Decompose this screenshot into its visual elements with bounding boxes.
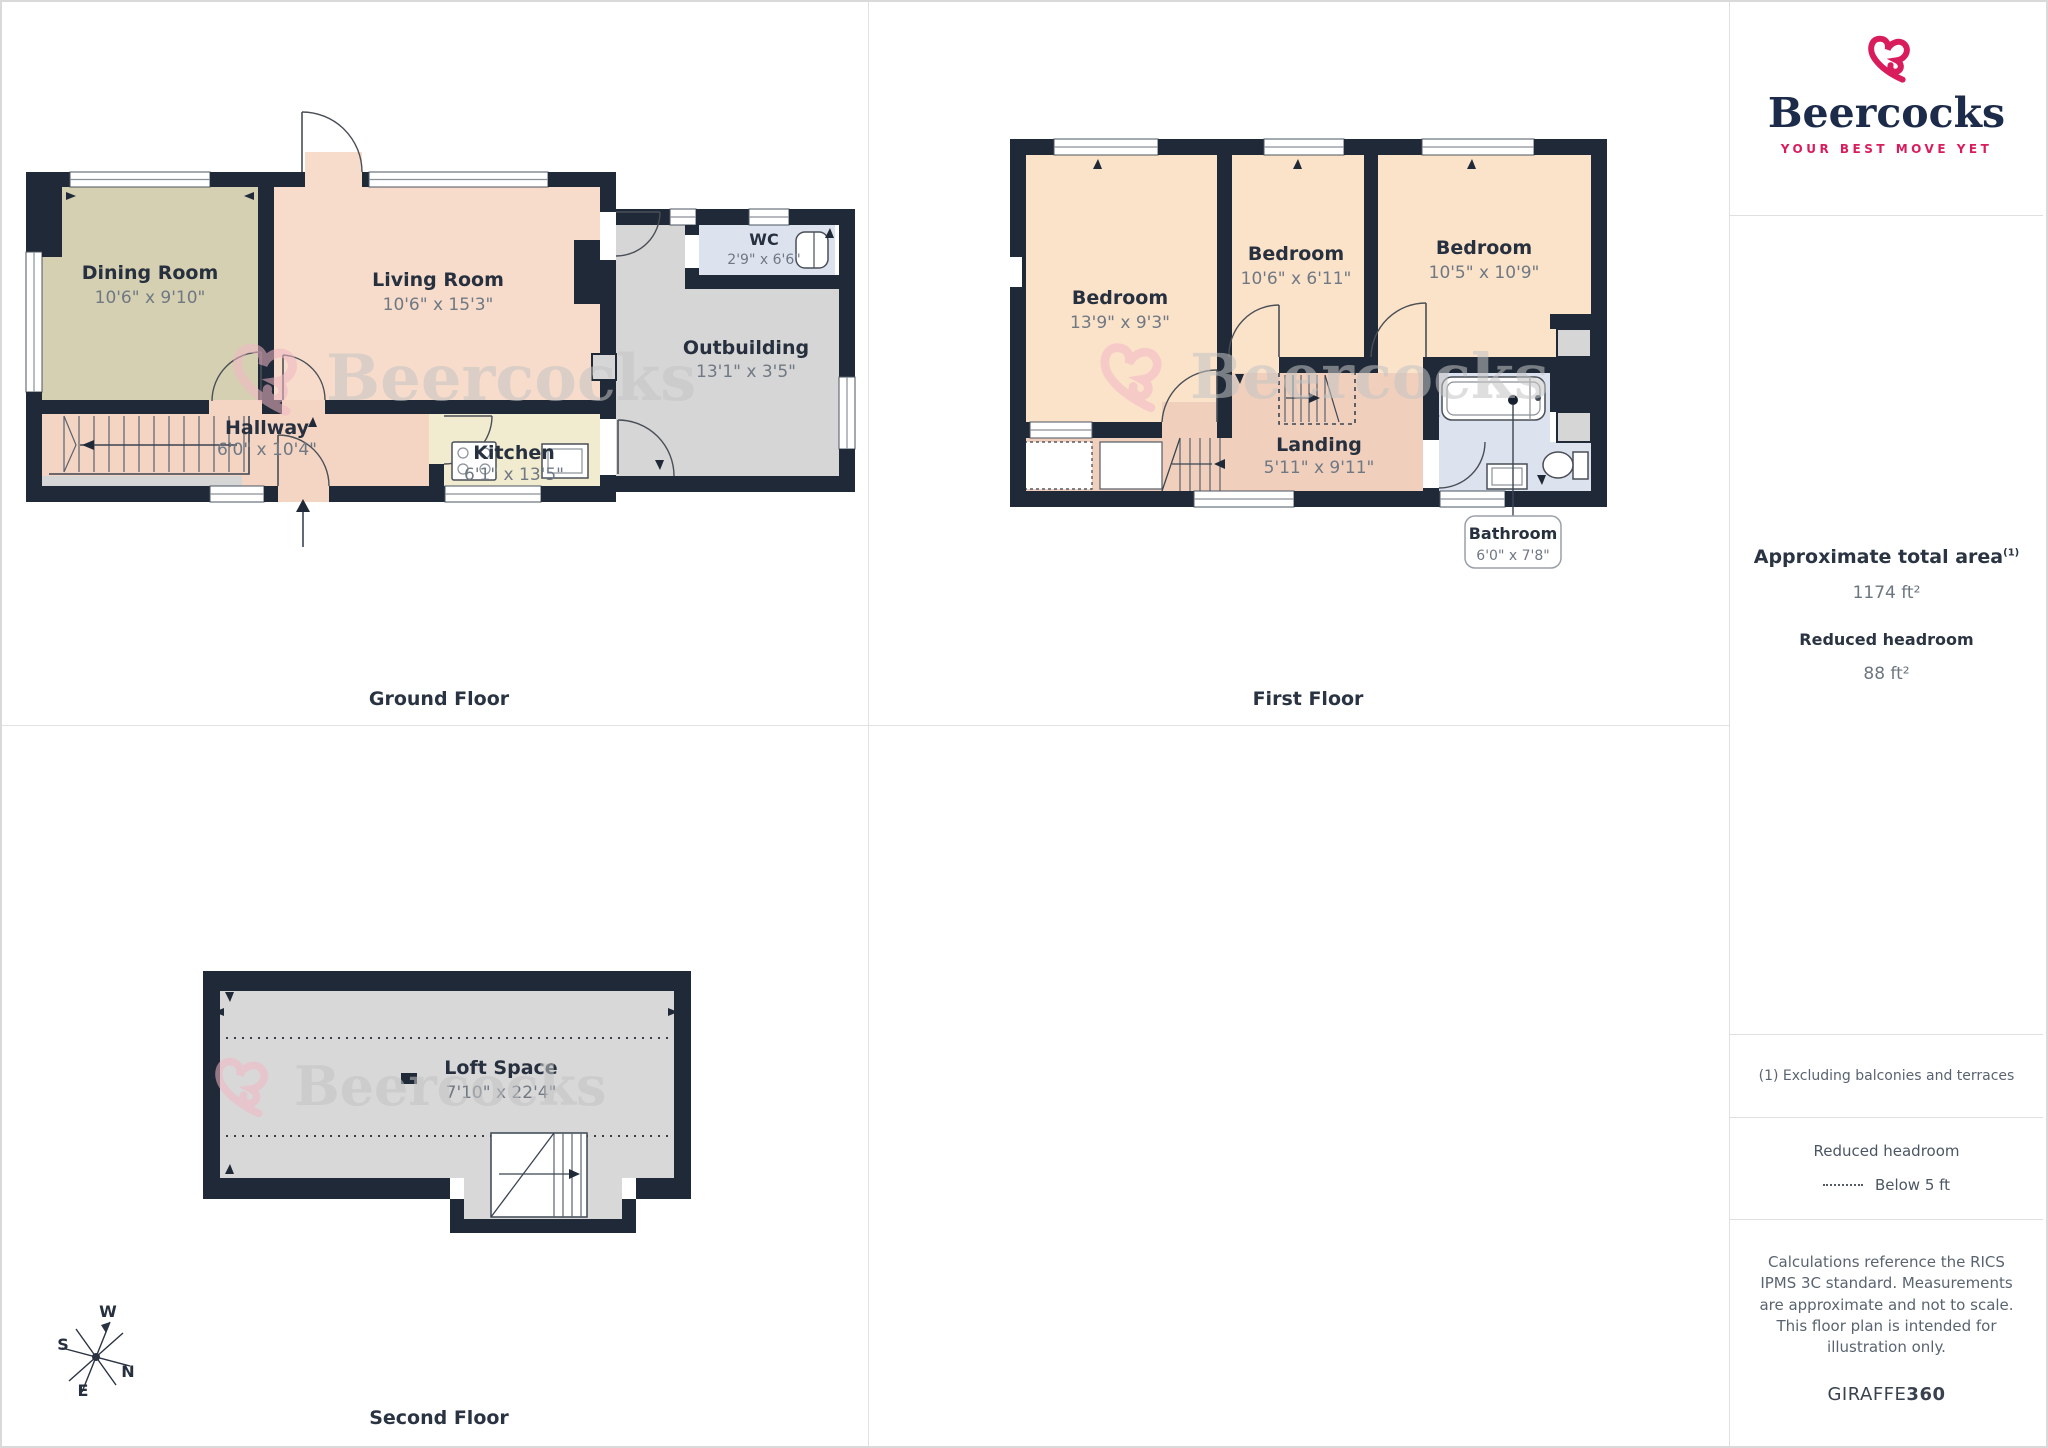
- callout-dot: [1508, 395, 1518, 405]
- footnote: (1) Excluding balconies and terraces: [1730, 1035, 2043, 1118]
- disclaimer: Calculations reference the RICS IPMS 3C …: [1730, 1220, 2043, 1446]
- loft-stairwell: [491, 1133, 587, 1217]
- room-name: Bedroom: [1072, 287, 1168, 309]
- room-name: Outbuilding: [683, 337, 809, 359]
- room-dims: 13'1" x 3'5": [696, 362, 796, 382]
- floorplan-page: Dining Room 10'6" x 9'10" Living Room 10…: [0, 0, 2048, 1448]
- giraffe-360-text: 360: [1906, 1384, 1945, 1405]
- total-area-title-text: Approximate total area: [1754, 546, 2003, 568]
- room-name: Bedroom: [1248, 243, 1344, 265]
- disclaimer-text: Calculations reference the RICS IPMS 3C …: [1758, 1252, 2015, 1358]
- compass-north: N: [121, 1362, 134, 1381]
- ground-floor-plan: Dining Room 10'6" x 9'10" Living Room 10…: [2, 62, 882, 702]
- room-name: WC: [749, 230, 778, 249]
- room-dims: 6'0" x 10'4": [217, 440, 317, 460]
- total-area-footnote-marker: (1): [2003, 548, 2019, 559]
- room-dims: 7'10" x 22'4": [446, 1083, 557, 1103]
- total-area-value: 1174 ft²: [1730, 583, 2043, 603]
- footnote-text: (1) Excluding balconies and terraces: [1759, 1068, 2015, 1084]
- room-name: Kitchen: [473, 442, 555, 464]
- compass-icon: W S N E: [32, 1297, 162, 1427]
- giraffe-text: GIRAFFE: [1827, 1384, 1906, 1405]
- toilet-icon: [1543, 452, 1588, 479]
- total-area-title: Approximate total area(1): [1730, 546, 2043, 568]
- room-name: Living Room: [372, 269, 504, 291]
- compass-east: E: [78, 1381, 89, 1400]
- chimney: [401, 1073, 417, 1084]
- legend-row: Below 5 ft: [1730, 1176, 2043, 1194]
- second-floor-label: Second Floor: [369, 1407, 509, 1429]
- brand-logo: Beercocks YOUR BEST MOVE YET: [1730, 2, 2043, 216]
- cupboard: [1557, 329, 1591, 357]
- room-dims: 10'5" x 10'9": [1429, 263, 1540, 283]
- area-summary: Approximate total area(1) 1174 ft² Reduc…: [1730, 216, 2043, 1035]
- legend-item-label: Below 5 ft: [1875, 1176, 1950, 1194]
- room-name: Loft Space: [444, 1057, 557, 1079]
- legend-title: Reduced headroom: [1730, 1142, 2043, 1160]
- room-name: Bedroom: [1436, 237, 1532, 259]
- cupboard: [592, 354, 616, 380]
- first-floor-plan: Bathroom 6'0" x 7'8" Bedroom 13'9" x 9'3…: [982, 102, 1682, 642]
- toilet-icon: [796, 232, 828, 268]
- room-dims: 6'0" x 7'8": [1476, 548, 1549, 564]
- room-name: Bathroom: [1469, 524, 1558, 543]
- dashed-line-icon: [1823, 1184, 1863, 1186]
- brand-name: Beercocks: [1768, 92, 2005, 135]
- room-dims: 5'11" x 9'11": [1264, 458, 1375, 478]
- grid-divider-horizontal: [2, 725, 1729, 726]
- room-dims: 2'9" x 6'6": [727, 252, 800, 268]
- room-dims: 10'6" x 9'10": [95, 288, 206, 308]
- brand-tagline: YOUR BEST MOVE YET: [1781, 142, 1993, 156]
- bathtub-icon: [1442, 377, 1545, 420]
- room-dims: 6'1" x 13'5": [464, 465, 564, 485]
- reduced-headroom-value: 88 ft²: [1730, 664, 2043, 684]
- beercocks-heart-icon: [1854, 28, 1920, 88]
- compass-south: S: [57, 1335, 69, 1354]
- second-floor-plan: Loft Space 7'10" x 22'4": [172, 942, 732, 1252]
- room-name: Hallway: [225, 417, 310, 439]
- legend: Reduced headroom Below 5 ft: [1730, 1118, 2043, 1220]
- room-dims: 10'6" x 6'11": [1241, 269, 1352, 289]
- entrance-arrow: [296, 499, 310, 547]
- first-floor-label: First Floor: [1253, 688, 1364, 710]
- info-sidebar: Beercocks YOUR BEST MOVE YET Approximate…: [1729, 2, 2043, 1446]
- room-dims: 13'9" x 9'3": [1070, 313, 1170, 333]
- room-name: Dining Room: [82, 262, 219, 284]
- sink-icon: [1487, 464, 1527, 489]
- cupboard: [1557, 412, 1591, 442]
- room-name: Landing: [1276, 434, 1362, 456]
- giraffe360-logo: GIRAFFE360: [1758, 1382, 2015, 1408]
- reduced-headroom-title: Reduced headroom: [1730, 630, 2043, 649]
- chimney-breast: [574, 240, 600, 304]
- ground-floor-label: Ground Floor: [369, 688, 509, 710]
- room-dims: 10'6" x 15'3": [383, 295, 494, 315]
- compass-west: W: [99, 1302, 117, 1321]
